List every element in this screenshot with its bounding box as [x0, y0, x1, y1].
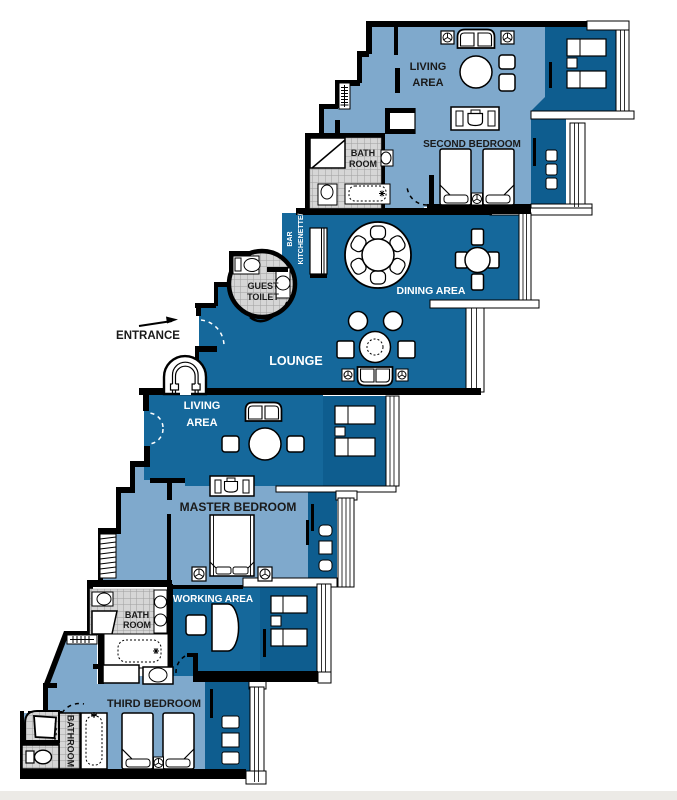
- svg-text:THIRD BEDROOM: THIRD BEDROOM: [107, 698, 201, 710]
- svg-text:LIVING: LIVING: [184, 400, 221, 412]
- svg-text:AREA: AREA: [186, 417, 217, 429]
- svg-text:TOILET: TOILET: [247, 292, 279, 302]
- svg-text:ENTRANCE: ENTRANCE: [116, 330, 180, 342]
- svg-text:BAR: BAR: [287, 231, 294, 246]
- svg-text:WORKING AREA: WORKING AREA: [173, 594, 253, 605]
- svg-text:AREA: AREA: [412, 77, 443, 89]
- svg-text:BATH: BATH: [125, 610, 149, 620]
- svg-text:LIVING: LIVING: [410, 61, 447, 73]
- svg-text:DINING AREA: DINING AREA: [396, 285, 465, 297]
- svg-text:GUEST: GUEST: [247, 281, 279, 291]
- svg-text:SECOND BEDROOM: SECOND BEDROOM: [423, 139, 521, 150]
- svg-text:LOUNGE: LOUNGE: [269, 354, 322, 368]
- svg-text:BATHROOM: BATHROOM: [66, 715, 76, 767]
- svg-text:ROOM: ROOM: [349, 159, 377, 169]
- svg-text:KITCHENETTE/: KITCHENETTE/: [298, 213, 305, 264]
- svg-text:MASTER BEDROOM: MASTER BEDROOM: [180, 500, 297, 514]
- svg-text:BATH: BATH: [351, 148, 375, 158]
- svg-text:ROOM: ROOM: [123, 620, 151, 630]
